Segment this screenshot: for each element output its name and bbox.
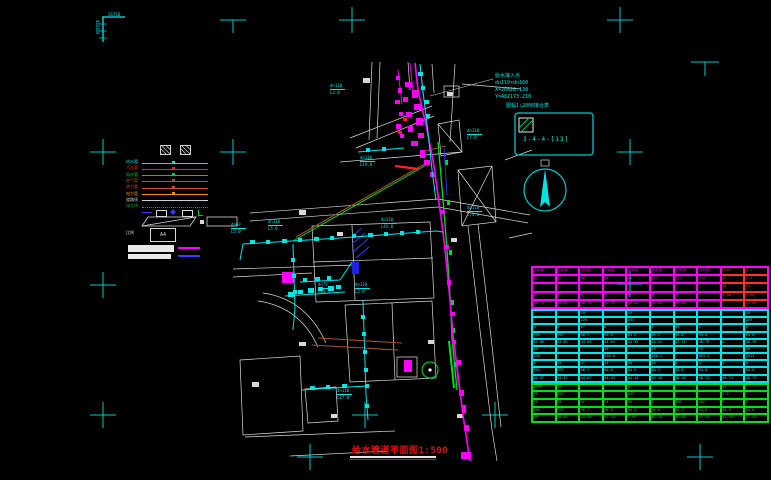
well-table-section-sewer: 191919226283229HAAA11W11XF94F6796.796.88… <box>531 309 769 383</box>
pipe-diameter: dn110 <box>268 220 283 225</box>
table-cell: 94.8 <box>697 332 721 339</box>
table-cell: 94.8 <box>744 407 768 415</box>
table-cell: 44.47 <box>556 375 580 382</box>
table-cell: F97 <box>556 407 580 415</box>
table-cell <box>556 283 580 291</box>
table-cell: X <box>744 324 768 331</box>
table-cell: F67 <box>556 367 580 374</box>
pipe-diameter: dn110 <box>381 218 396 223</box>
sheet-index-number: 3-4-4-[13] <box>523 136 569 143</box>
table-cell <box>626 353 650 360</box>
table-cell: 砼 <box>650 292 674 300</box>
table-cell: 21 <box>744 283 768 291</box>
table-cell: 砼 <box>674 292 698 300</box>
table-cell: 44.43 <box>603 375 627 382</box>
legend-frame-symbols <box>140 216 240 228</box>
table-cell <box>674 346 698 353</box>
table-cell: 94.8 <box>744 367 768 374</box>
table-cell: 853.2 <box>697 353 721 360</box>
pipe-length: L19.0 <box>360 163 375 168</box>
table-cell: 94.8 <box>674 332 698 339</box>
legend-header-hatch-icon <box>180 145 191 155</box>
pipe-length: L11.5 <box>318 290 333 295</box>
sheet-corner-mark <box>99 16 125 42</box>
table-cell <box>697 391 721 399</box>
pipe-label: dn63L5.0 <box>231 223 246 234</box>
table-cell: 84.5 <box>626 332 650 339</box>
title-underline <box>350 459 436 460</box>
table-cell <box>556 346 580 353</box>
table-cell <box>579 346 603 353</box>
corner-coordinate-x: 26750 <box>108 12 120 17</box>
gas-pipe-lines <box>296 146 446 350</box>
legend-line-symbol <box>172 192 175 195</box>
table-cell: 17.53 <box>744 414 768 422</box>
pipe-length: L17.0 <box>337 396 352 401</box>
table-cell <box>744 391 768 399</box>
table-cell <box>579 391 603 399</box>
table-cell: 19 <box>650 346 674 353</box>
table-cell: 4 <box>650 399 674 407</box>
table-cell: 48.10 <box>674 375 698 382</box>
pipe-label: dn110L17.0 <box>337 389 352 400</box>
table-cell: 4999 <box>532 384 556 392</box>
table-cell: 96.8 <box>603 367 627 374</box>
table-cell <box>603 283 627 291</box>
scale-bar <box>128 254 171 259</box>
table-cell: m <box>721 339 745 346</box>
table-cell: 1 <box>650 324 674 331</box>
legend-line-sample <box>142 175 208 176</box>
table-cell <box>532 283 556 291</box>
table-cell <box>697 300 721 308</box>
pipe-diameter: dn75 <box>318 283 333 288</box>
table-cell: 44.85 <box>556 339 580 346</box>
table-cell <box>721 300 745 308</box>
table-cell: 4 <box>674 360 698 367</box>
sheet-index-caption: 图幅1:2000接合表 <box>506 102 549 109</box>
pipe-label: dn110L75.0 <box>467 206 482 217</box>
legend-item-label: 污水管 <box>126 165 138 171</box>
table-cell: 97 <box>721 384 745 392</box>
table-cell: F9 <box>532 399 556 407</box>
table-cell: 14.05 <box>744 300 768 308</box>
table-cell <box>532 317 556 324</box>
pipe-label: dn110L3.0 <box>330 84 345 95</box>
table-cell: 84.5 <box>626 367 650 374</box>
table-cell: 1 <box>626 324 650 331</box>
pipe-diameter: dn110 <box>360 156 375 161</box>
table-cell <box>721 324 745 331</box>
table-cell: 48.71 <box>697 375 721 382</box>
pipe-length: L2.0 <box>355 290 370 295</box>
scale-bar <box>128 245 174 252</box>
cad-drawing-canvas[interactable]: 26750 482100 给水接入点 dn110×dn160 X=26626.1… <box>0 0 771 480</box>
legend-line-symbol <box>172 167 175 170</box>
table-cell: 4 <box>744 360 768 367</box>
pipe-length: L7.0 <box>467 136 482 141</box>
pipe-length: L5.0 <box>268 227 283 232</box>
pipe-diameter: dn110 <box>355 283 370 288</box>
survey-note: 给水接入点 dn110×dn160 X=26626.138 Y=482173.2… <box>495 73 531 101</box>
table-cell: 229 <box>744 317 768 324</box>
table-cell: 96.7 <box>579 407 603 415</box>
table-cell <box>744 384 768 392</box>
table-cell: A <box>556 324 580 331</box>
table-cell: 48.79 <box>744 375 768 382</box>
table-cell: F94 <box>532 332 556 339</box>
table-cell: 污水井 <box>603 267 627 275</box>
legend-line-symbol <box>172 179 175 182</box>
pipe-label: dn110L2.0 <box>355 283 370 294</box>
table-cell <box>532 310 556 317</box>
table-cell: F4 <box>603 399 627 407</box>
table-cell <box>579 283 603 291</box>
table-cell: 44.04 <box>674 300 698 308</box>
sheet-index-box <box>515 113 593 155</box>
table-cell: 48.74 <box>532 300 556 308</box>
survey-note-line: 给水接入点 <box>495 73 531 80</box>
table-cell: 91 <box>579 399 603 407</box>
table-cell: 538.0 <box>603 353 627 360</box>
legend-line-symbol <box>172 161 175 164</box>
survey-note-line: dn110×dn160 <box>495 80 531 87</box>
table-cell: 497 <box>697 399 721 407</box>
table-cell: 48.74 <box>721 375 745 382</box>
sewer-fittings <box>282 76 471 459</box>
legend-line-sample <box>142 169 208 170</box>
table-cell <box>721 346 745 353</box>
table-cell: 44.94 <box>579 414 603 422</box>
table-cell: 19 <box>626 310 650 317</box>
legend-item: 污水管 <box>126 166 250 172</box>
legend-line-sample <box>142 194 208 195</box>
legend-item: 雨水管 <box>126 173 250 179</box>
table-cell <box>721 317 745 324</box>
table-cell: 4 <box>721 360 745 367</box>
table-cell: 污水井 <box>532 267 556 275</box>
table-cell: A <box>603 324 627 331</box>
pipe-length: L45.0 <box>381 225 396 230</box>
pipe-length: L3.0 <box>330 91 345 96</box>
table-cell: 砼 <box>603 292 627 300</box>
tree-symbol <box>428 368 431 371</box>
table-cell: 砼 <box>626 292 650 300</box>
legend-line-sample <box>142 207 208 208</box>
table-cell: 2.1 <box>744 275 768 283</box>
table-cell <box>697 283 721 291</box>
table-cell <box>674 283 698 291</box>
legend-cable-icon <box>142 212 152 213</box>
table-cell: 4 <box>532 360 556 367</box>
table-cell <box>579 384 603 392</box>
table-cell: 污水井 <box>556 267 580 275</box>
table-cell <box>674 384 698 392</box>
table-cell: 19 <box>744 346 768 353</box>
table-cell <box>650 391 674 399</box>
table-cell: W6 <box>579 275 603 283</box>
legend-item-label: 热力管 <box>126 184 138 190</box>
table-cell: 226 <box>579 317 603 324</box>
road-and-building-lines <box>233 62 532 461</box>
table-cell: F94 <box>532 367 556 374</box>
table-cell: 94.4 <box>674 407 698 415</box>
pipe-diameter: dn63 <box>231 223 246 228</box>
table-cell: 44.07 <box>579 375 603 382</box>
table-cell: 44.64 <box>603 339 627 346</box>
pipe-diameter: dn110 <box>337 389 352 394</box>
table-cell: 44.94 <box>626 339 650 346</box>
table-cell <box>603 317 627 324</box>
table-cell: 99 <box>556 384 580 392</box>
pipe-length: L75.0 <box>467 213 482 218</box>
table-cell: 47.04 <box>674 414 698 422</box>
table-cell: 污水井 <box>697 267 721 275</box>
table-cell: 94.8 <box>674 367 698 374</box>
table-cell: W9 <box>603 275 627 283</box>
table-cell: H <box>532 324 556 331</box>
table-cell: FS4 <box>697 275 721 283</box>
pipe-label: dn110L19.0 <box>360 156 375 167</box>
table-cell: 96.7 <box>579 367 603 374</box>
legend-blue-line <box>178 255 200 257</box>
table-cell <box>650 283 674 291</box>
water-pipes <box>240 64 443 420</box>
table-cell: 4 <box>579 360 603 367</box>
table-cell <box>697 310 721 317</box>
table-cell: 94 <box>626 360 650 367</box>
table-cell <box>721 367 745 374</box>
table-cell: 9 <box>721 399 745 407</box>
table-cell <box>674 310 698 317</box>
table-cell: 533 <box>626 391 650 399</box>
title-underline <box>350 456 436 458</box>
table-cell <box>603 310 627 317</box>
table-cell: 6.1 <box>744 267 768 275</box>
table-cell: 44.07 <box>532 375 556 382</box>
table-cell: 96.8 <box>603 407 627 415</box>
table-cell <box>556 353 580 360</box>
legend-line-sample <box>142 181 208 182</box>
survey-note-line: X=26626.138 <box>495 87 531 94</box>
table-cell <box>650 317 674 324</box>
table-cell: 47.24 <box>650 414 674 422</box>
survey-note-line: Y=482173.218 <box>495 94 531 101</box>
table-cell: FS1 <box>650 275 674 283</box>
table-cell: 2513 <box>744 353 768 360</box>
table-cell: 4.98 <box>721 292 745 300</box>
table-cell: 48.76 <box>603 300 627 308</box>
legend-item-label: 燃气管 <box>126 178 138 184</box>
table-cell: 48.45 <box>556 414 580 422</box>
table-cell: 砼 <box>556 292 580 300</box>
table-cell: 19 <box>697 346 721 353</box>
table-cell: 48.43 <box>556 300 580 308</box>
table-cell: 1 <box>697 324 721 331</box>
pipe-diameter: dn110 <box>467 129 482 134</box>
table-cell: 19 <box>603 346 627 353</box>
table-cell: A <box>579 324 603 331</box>
legend-item-label: 电力管 <box>126 191 138 197</box>
table-cell: 94.8 <box>744 332 768 339</box>
legend-header-hatch-icon <box>160 145 171 155</box>
table-cell: 砼 <box>579 292 603 300</box>
table-cell: 99 <box>626 399 650 407</box>
table-cell: 14 <box>556 360 580 367</box>
table-cell: F9 <box>532 391 556 399</box>
pipe-label: dn110L7.0 <box>467 129 482 140</box>
table-cell: 61 <box>721 275 745 283</box>
table-cell: 44.10 <box>650 375 674 382</box>
table-cell: 4 <box>697 360 721 367</box>
pipe-length: L5.0 <box>231 230 246 235</box>
table-cell <box>650 384 674 392</box>
table-cell <box>697 317 721 324</box>
drawing-title: 给水管道平面图1:500 <box>352 443 448 456</box>
table-cell: 44.06 <box>532 339 556 346</box>
table-cell: 84.2 <box>650 332 674 339</box>
table-cell: W1 <box>626 275 650 283</box>
table-cell: 539 <box>532 353 556 360</box>
legend-item-label: 绿化线 <box>126 203 138 209</box>
table-cell: F67 <box>556 332 580 339</box>
table-cell <box>603 391 627 399</box>
table-cell: FS2 <box>674 275 698 283</box>
legend-magenta-line <box>178 247 200 249</box>
pipe-label: dn75L11.5 <box>318 283 333 294</box>
well-table-section-water: 4999999797F9D235337.3F99491F49949904979F… <box>531 383 769 423</box>
table-cell: 283 <box>626 317 650 324</box>
table-cell: 34 <box>721 283 745 291</box>
table-cell: 44.43 <box>626 375 650 382</box>
table-cell: 污水井 <box>650 267 674 275</box>
table-cell: F592 <box>721 267 745 275</box>
pipe-diameter: dn110 <box>467 206 482 211</box>
table-cell: 47.11 <box>674 339 698 346</box>
table-cell <box>579 353 603 360</box>
table-cell: 44.84 <box>579 339 603 346</box>
table-cell <box>674 317 698 324</box>
table-cell: 990 <box>674 399 698 407</box>
table-cell: 48.73 <box>579 300 603 308</box>
table-cell <box>674 353 698 360</box>
table-cell: 97 <box>626 384 650 392</box>
north-arrow <box>524 160 566 211</box>
table-cell <box>674 391 698 399</box>
table-cell: D23 <box>556 391 580 399</box>
table-cell: 94.8 <box>697 367 721 374</box>
legend-line-symbol <box>172 186 175 189</box>
table-cell: 94 <box>556 399 580 407</box>
table-cell: 96.8 <box>603 332 627 339</box>
table-cell: 污水井 <box>674 267 698 275</box>
well-schedule-table: 污水井污水井污水井污水井污水井污水井污水井污水井F5926.1W7W5W6W9W… <box>531 266 769 423</box>
table-cell: 19 <box>744 310 768 317</box>
table-cell: 44.82 <box>650 300 674 308</box>
table-cell: 19 <box>532 346 556 353</box>
table-cell: W7 <box>532 275 556 283</box>
table-cell: 84.2 <box>650 367 674 374</box>
legend-item: 道路线 <box>126 198 250 204</box>
table-cell <box>721 332 745 339</box>
table-cell: 48.81 <box>626 300 650 308</box>
table-cell: 94.8 <box>697 407 721 415</box>
table-cell: 7.93 <box>626 414 650 422</box>
table-cell: 47.49 <box>721 414 745 422</box>
table-cell: 74 <box>603 360 627 367</box>
table-cell: 砼 <box>532 292 556 300</box>
table-cell <box>603 384 627 392</box>
legend-line-sample <box>142 163 208 164</box>
table-cell: 34 <box>650 360 674 367</box>
legend-scale-label: 比例 <box>126 230 134 236</box>
table-cell: F <box>744 399 768 407</box>
table-cell: 19 <box>579 310 603 317</box>
table-cell: 380.1 <box>650 353 674 360</box>
table-cell <box>721 310 745 317</box>
table-cell <box>556 310 580 317</box>
legend-item: 电力管 <box>126 192 250 198</box>
table-cell: W1 <box>674 324 698 331</box>
legend-line-sample <box>142 188 208 189</box>
paper-size-box: A4 <box>150 228 176 242</box>
table-cell <box>697 292 721 300</box>
table-cell <box>626 283 650 291</box>
legend-item-label: 雨水管 <box>126 172 138 178</box>
table-cell: 44.41 <box>650 339 674 346</box>
table-cell: F99 <box>532 407 556 415</box>
table-cell: 99 <box>532 414 556 422</box>
table-cell: 48.79 <box>697 339 721 346</box>
table-cell <box>721 353 745 360</box>
table-cell: 94.5 <box>626 407 650 415</box>
legend-line-sample <box>142 200 208 201</box>
table-cell <box>650 310 674 317</box>
table-cell: 7.3 <box>721 391 745 399</box>
legend-line-symbol <box>172 173 175 176</box>
pipe-label: dn110L5.0 <box>268 220 283 231</box>
table-cell: 污水井 <box>579 267 603 275</box>
legend-item: 燃气管 <box>126 179 250 185</box>
pipe-label: dn110L45.0 <box>381 218 396 229</box>
table-cell: 污水井 <box>626 267 650 275</box>
table-cell <box>556 317 580 324</box>
legend: 给水管污水管雨水管燃气管热力管电力管道路线绿化线 比例 A4 <box>126 143 250 273</box>
legend-item: 给水管 <box>126 160 250 166</box>
table-cell <box>626 346 650 353</box>
legend-item-label: 道路线 <box>126 197 138 203</box>
table-cell <box>697 384 721 392</box>
table-cell: 47.52 <box>697 414 721 422</box>
corner-coordinate-y: 482100 <box>95 20 100 34</box>
table-cell: 94.8 <box>650 407 674 415</box>
table-cell: 47.24 <box>603 414 627 422</box>
pipe-diameter: dn110 <box>330 84 345 89</box>
table-cell: 96.7 <box>579 332 603 339</box>
table-cell: 48.39 <box>744 339 768 346</box>
table-cell: W5 <box>556 275 580 283</box>
well-table-section-storm: 污水井污水井污水井污水井污水井污水井污水井污水井F5926.1W7W5W6W9W… <box>531 266 769 309</box>
table-cell: 4.96 <box>744 292 768 300</box>
table-cell: 94.9 <box>721 407 745 415</box>
sewer-main <box>282 63 471 461</box>
legend-item: 热力管 <box>126 185 250 191</box>
